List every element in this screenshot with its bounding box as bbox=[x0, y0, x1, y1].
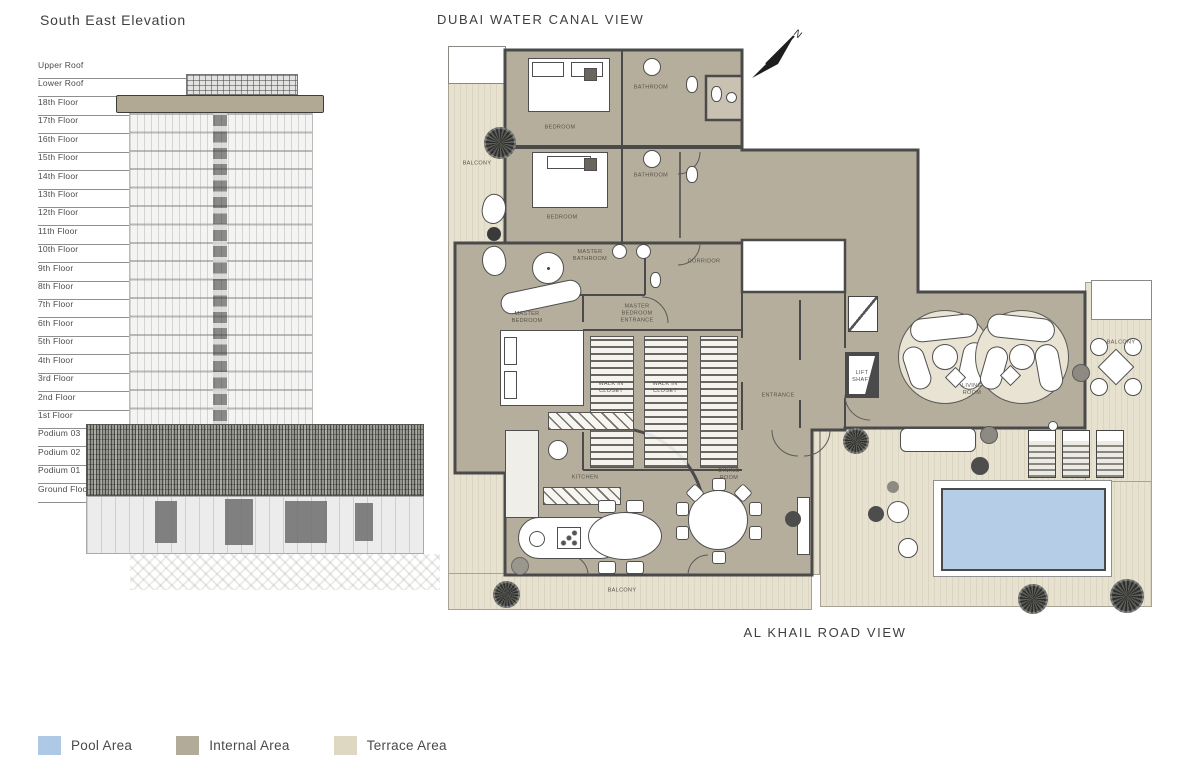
legend: Pool AreaInternal AreaTerrace Area bbox=[38, 736, 447, 755]
room-label-entrance: ENTRANCE bbox=[756, 393, 800, 400]
room-label-balcony-right: BALCONY bbox=[1101, 340, 1141, 347]
room-label-balcony-bottom: BALCONY bbox=[600, 588, 644, 595]
room-labels-layer: BEDROOMBATHROOMBEDROOMBATHROOMMASTER BAT… bbox=[0, 0, 1200, 762]
legend-label-terrace-area: Terrace Area bbox=[367, 738, 447, 753]
legend-swatch-pool-area bbox=[38, 736, 61, 755]
room-label-corridor: CORRIDOR bbox=[684, 259, 724, 266]
legend-label-internal-area: Internal Area bbox=[209, 738, 289, 753]
legend-item-terrace-area: Terrace Area bbox=[334, 736, 447, 755]
page: South East Elevation Upper RoofLower Roo… bbox=[0, 0, 1200, 762]
room-label-bathroom-1: BATHROOM bbox=[626, 85, 676, 92]
legend-swatch-terrace-area bbox=[334, 736, 357, 755]
room-label-master-bedroom: MASTER BEDROOM bbox=[509, 311, 545, 325]
legend-item-pool-area: Pool Area bbox=[38, 736, 132, 755]
room-label-bathroom-2: BATHROOM bbox=[626, 173, 676, 180]
legend-item-internal-area: Internal Area bbox=[176, 736, 289, 755]
room-label-dining-room: DINING ROOM bbox=[713, 468, 745, 482]
room-label-walk-in-closet-1: WALK IN CLOSET bbox=[596, 381, 626, 395]
room-label-master-bathroom: MASTER BATHROOM bbox=[570, 249, 610, 263]
room-label-living-room: LIVING ROOM bbox=[957, 383, 987, 397]
legend-label-pool-area: Pool Area bbox=[71, 738, 132, 753]
room-label-kitchen: KITCHEN bbox=[563, 475, 607, 482]
room-label-balcony-left: BALCONY bbox=[457, 161, 497, 168]
legend-swatch-internal-area bbox=[176, 736, 199, 755]
room-label-bedroom-2: BEDROOM bbox=[537, 215, 587, 222]
room-label-lift-shaft: LIFT SHAFT bbox=[851, 370, 873, 384]
room-label-walk-in-closet-2: WALK IN CLOSET bbox=[650, 381, 680, 395]
room-label-master-bedroom-entrance: MASTER BEDROOM ENTRANCE bbox=[616, 304, 658, 325]
room-label-bedroom-1: BEDROOM bbox=[535, 125, 585, 132]
